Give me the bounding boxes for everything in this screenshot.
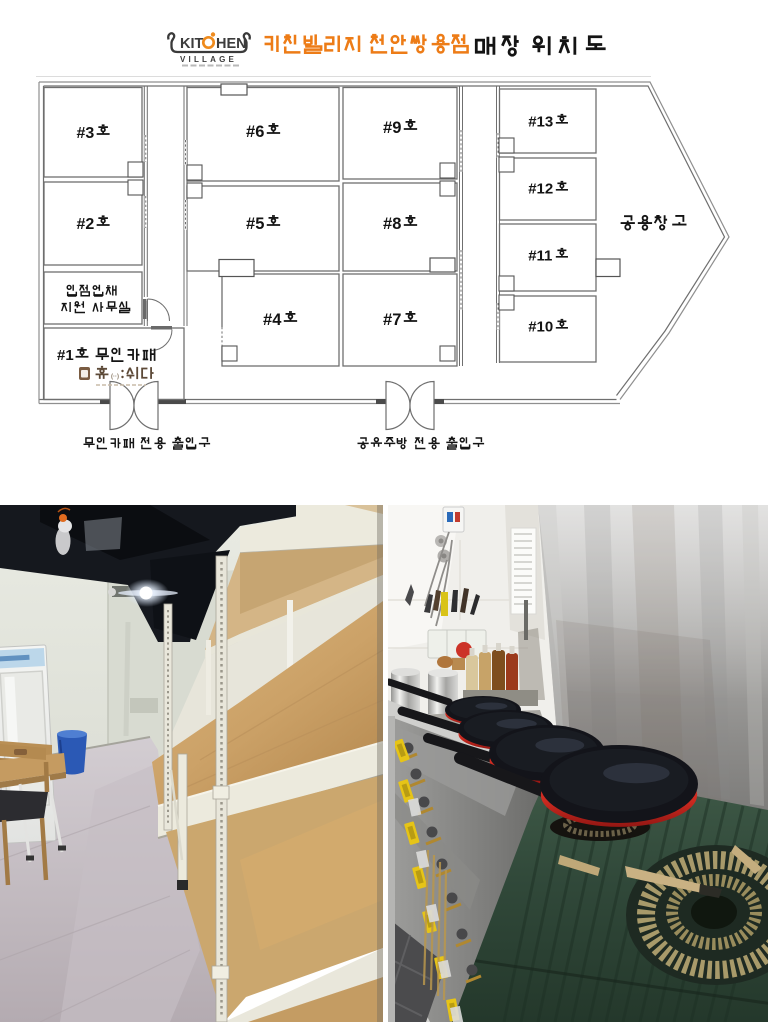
svg-text:#11: #11 [528,247,552,264]
svg-text:#10: #10 [528,318,553,335]
svg-text:#1: #1 [57,347,74,364]
svg-text:#13: #13 [528,113,553,130]
svg-text:#4: #4 [263,311,282,329]
svg-text:#5: #5 [246,215,264,233]
svg-text:#7: #7 [383,311,401,329]
svg-text:#3: #3 [77,125,95,142]
svg-text:#2: #2 [77,216,95,233]
svg-text:#9: #9 [383,119,401,137]
svg-text:#12: #12 [528,180,553,197]
svg-text:(··): (··) [111,374,119,380]
svg-text:#8: #8 [383,215,401,233]
svg-text:KIT: KIT [180,36,204,52]
svg-text:HEN: HEN [216,36,247,52]
svg-text:VILLAGE: VILLAGE [180,55,237,64]
svg-text:#6: #6 [246,123,264,141]
